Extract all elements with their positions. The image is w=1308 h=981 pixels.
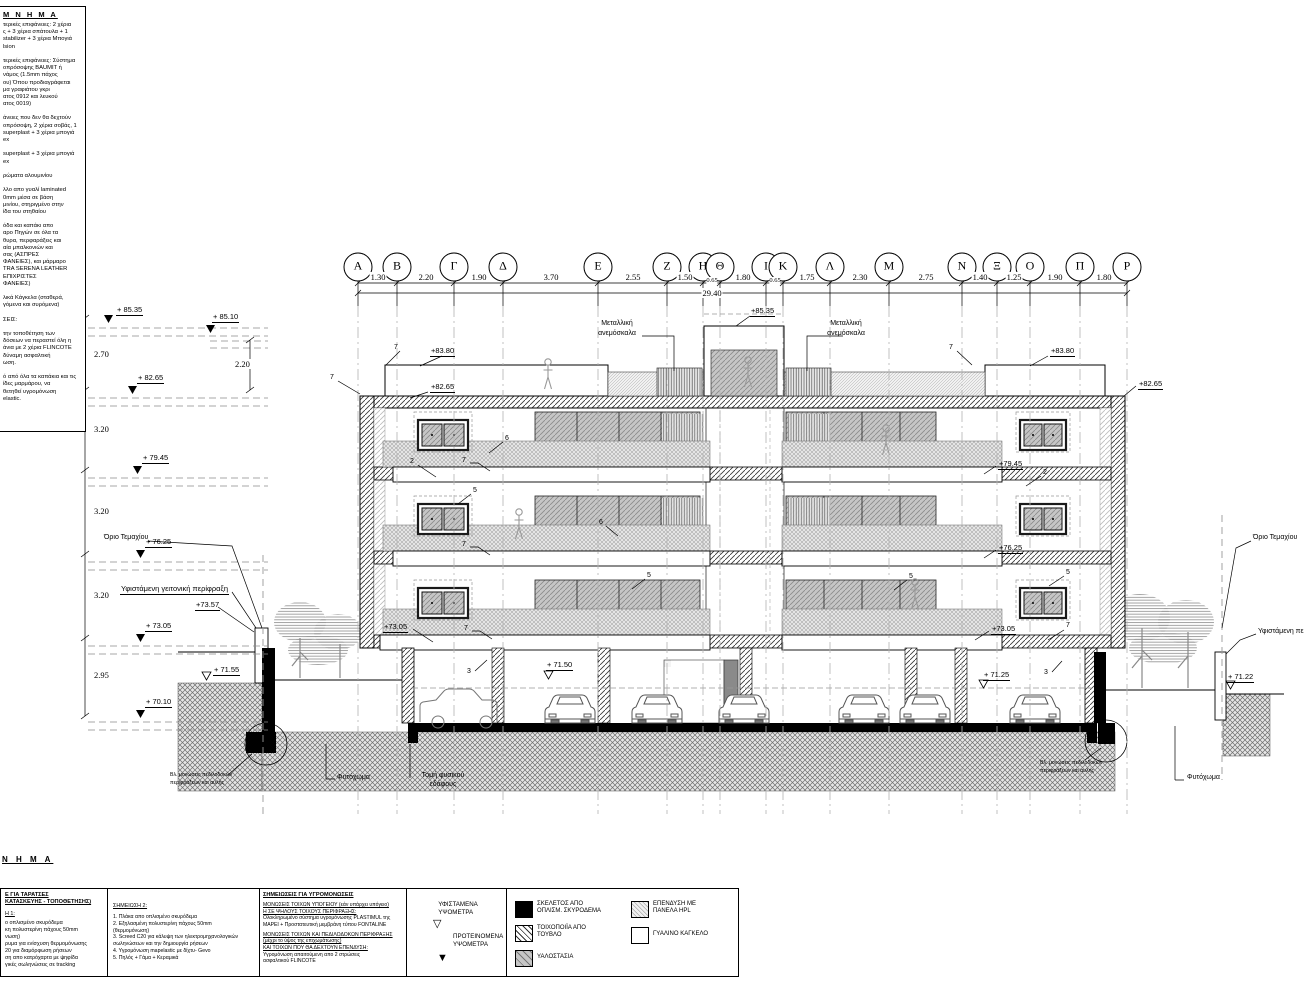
glazing-swatch-icon [515, 950, 533, 967]
level-83-80: +83.80 [430, 347, 455, 357]
level-79-45: +79.45 [998, 460, 1023, 470]
bottom-legend-header: Ν Η Μ Α [2, 855, 53, 864]
callout-6: 6 [599, 519, 603, 526]
metal-ladder-right [786, 368, 831, 396]
grid-dim: 1.90 [471, 272, 488, 282]
metal-ladder-label: Μεταλλική [601, 320, 633, 327]
level-85-35-roof: +85.35 [750, 307, 775, 317]
metal-ladder-left [657, 368, 702, 396]
grid-axis-M: Μ [875, 253, 904, 282]
level-83-80: +83.80 [1050, 347, 1075, 357]
grid-axis-A: Α [344, 253, 373, 282]
proposed-levels-label: ΠΡΟΤΕΙΝΟΜΕΝΑ ΥΨΟΜΕΤΡΑ [453, 933, 503, 949]
architectural-section-sheet: Μ Ν Η Μ Α τερικές επιφάνειες: 2 χέρια ς … [0, 0, 1308, 981]
grid-axis-B: Β [383, 253, 412, 282]
level-82-65: + 82.65 [137, 374, 164, 384]
level-82-65: +82.65 [430, 383, 455, 393]
glass-rail-label: ΓΥΑΛΙΝΟ ΚΑΓΚΕΛΟ [653, 931, 708, 938]
materials-legend-box: Μ Ν Η Μ Α τερικές επιφάνειες: 2 χέρια ς … [0, 6, 86, 432]
car [545, 695, 595, 723]
metal-ladder-label: ανεμόσκαλα [827, 330, 865, 337]
footing-insulation-note: περιφράξεων και αυλής [170, 781, 224, 786]
brick-swatch-icon [515, 925, 533, 942]
grid-dim: 2.20 [418, 272, 435, 282]
note1-subtitle: Η 1: [5, 911, 105, 918]
waterproofing-title: ΣΗΜΕΙΩΣΕΙΣ ΓΙΑ ΥΓΡΟΜΟΝΩΣΕΙΣ [263, 892, 403, 899]
existing-fence-label: Υφιστάμενη πε [1258, 628, 1304, 635]
callout-3: 3 [467, 668, 471, 675]
existing-levels-label: ΥΦΙΣΤΑΜΕΝΑ ΥΨΟΜΕΤΡΑ [438, 901, 478, 917]
waterproofing-notes-block: ΣΗΜΕΙΩΣΕΙΣ ΓΙΑ ΥΓΡΟΜΟΝΩΣΕΙΣ ΜΟΝΩΣΕΙΣ ΤΟΙ… [263, 892, 403, 965]
grid-dim: 0.65 [706, 277, 717, 284]
grid-dim: 1.80 [735, 272, 752, 282]
car [632, 695, 682, 723]
callout-7: 7 [1066, 622, 1070, 629]
level-82-65: +82.65 [1138, 380, 1163, 390]
callout-5: 5 [473, 487, 477, 494]
level-71-55: + 71.55 [213, 666, 240, 676]
dim-3-20: 3.20 [93, 424, 110, 434]
car [839, 695, 889, 723]
grid-dim: 2.30 [852, 272, 869, 282]
callout-5: 5 [1066, 569, 1070, 576]
level-73-05: + 73.05 [145, 622, 172, 632]
waterproofing-sub1: ΜΟΝΩΣΕΙΣ ΤΟΙΧΩΝ ΥΠΟΓΕΙΟΥ (εάν υπάρχει υπ… [263, 902, 403, 915]
grid-axis-R: Ρ [1113, 253, 1142, 282]
glazing-label: ΥΑΛΟΣΤΑΣΙΑ [537, 954, 573, 961]
dim-2-95: 2.95 [93, 670, 110, 680]
hpl-swatch-icon [631, 901, 649, 918]
grid-dim: 1.75 [799, 272, 816, 282]
callout-7: 7 [462, 457, 466, 464]
natural-ground-label: εδάφους [430, 781, 457, 788]
plot-boundary-label: Όριο Τεμαχίου [104, 534, 148, 541]
level-79-45: + 79.45 [142, 454, 169, 464]
callout-7: 7 [330, 374, 334, 381]
dim-3-20: 3.20 [93, 590, 110, 600]
roof-notes-block: Ε ΓΙΑ ΤΑΡΑΤΣΕΣ ΚΑΤΑΣΚΕΥΗΣ - ΤΟΠΟΘΕΤΗΣΗΣ)… [5, 892, 105, 969]
level-73-57: +73.57 [195, 601, 220, 611]
note2-body: 1. Πλάκα απο οπλισμένο σκυρόδεμα 2. Εξηλ… [113, 914, 256, 961]
roof-notes-title: Ε ΓΙΑ ΤΑΡΑΤΣΕΣ [5, 892, 105, 899]
divider [406, 889, 407, 976]
note1-body: ο οπλισμένο σκυρόδεμα κη πολυστερίνη πάχ… [5, 920, 105, 969]
topsoil-label: Φυτόχωμα [1187, 774, 1220, 781]
metal-ladder-label: Μεταλλική [830, 320, 862, 327]
divider [107, 889, 108, 976]
existing-level-icon: ▽ [433, 919, 441, 930]
brick-label: ΤΟΙΧΟΠΟΙΪΑ ΑΠΟ ΤΟΥΒΛΟ [537, 925, 586, 939]
car [719, 695, 769, 723]
waterproofing-body2: Υγρομόνωση απαιτούμενη απο 2 στρώσεις ασ… [263, 952, 403, 965]
level-71-50: + 71.50 [546, 661, 573, 671]
footing-insulation-note: περιφράξεων και αυλής [1040, 769, 1094, 774]
callout-7: 7 [394, 344, 398, 351]
grid-axis-L: Λ [816, 253, 845, 282]
divider [259, 889, 260, 976]
callout-5: 5 [909, 573, 913, 580]
callout-7: 7 [464, 625, 468, 632]
callout-7: 7 [949, 344, 953, 351]
level-73-05: +73.05 [991, 625, 1016, 635]
natural-ground-label: Τομή φυσικού [422, 772, 465, 779]
grid-dim: 1.30 [370, 272, 387, 282]
grid-dim: 1.40 [972, 272, 989, 282]
car [1010, 695, 1060, 723]
topsoil-label: Φυτόχωμα [337, 774, 370, 781]
grid-axis-P: Π [1066, 253, 1095, 282]
level-76-25: + 76.25 [145, 538, 172, 548]
callout-3: 3 [1044, 669, 1048, 676]
legend-body: τερικές επιφάνειες: 2 χέρια ς + 3 χέρια … [3, 22, 83, 403]
level-85-10: + 85.10 [212, 313, 239, 323]
dim-3-20: 3.20 [93, 506, 110, 516]
concrete-swatch-icon [515, 901, 533, 918]
footing-insulation-note: Βλ. μονώσεις πεδιλοδοκών [1040, 761, 1102, 766]
car [900, 695, 950, 723]
notes-strip: Ε ΓΙΑ ΤΑΡΑΤΣΕΣ ΚΑΤΑΣΚΕΥΗΣ - ΤΟΠΟΘΕΤΗΣΗΣ)… [0, 888, 739, 977]
plot-boundary-label: Όριο Τεμαχίου [1253, 534, 1297, 541]
waterproofing-sub2: ΜΟΝΩΣΕΙΣ ΤΟΙΧΩΝ ΚΑΙ ΠΕΔΙΛΟΔΟΚΩΝ ΠΕΡΙΦΡΑΞ… [263, 932, 403, 952]
proposed-level-icon: ▼ [437, 953, 448, 964]
callout-7: 7 [462, 541, 466, 548]
grid-total-dim: 29.40 [701, 288, 722, 298]
note2-block: ΣΗΜΕΙΩΣΗ 2: 1. Πλάκα απο οπλισμένο σκυρό… [113, 903, 256, 961]
callout-6: 6 [505, 435, 509, 442]
callout-2: 2 [1043, 469, 1047, 476]
level-71-22: + 71.22 [1227, 673, 1254, 683]
callout-5: 5 [647, 572, 651, 579]
roof-notes-title2: ΚΑΤΑΣΚΕΥΗΣ - ΤΟΠΟΘΕΤΗΣΗΣ) [5, 899, 105, 906]
grid-dim: 2.55 [625, 272, 642, 282]
level-76-25: +76.25 [998, 544, 1023, 554]
dim-2-20: 2.20 [234, 359, 251, 369]
grid-dim: 1.80 [1096, 272, 1113, 282]
note2-title: ΣΗΜΕΙΩΣΗ 2: [113, 903, 256, 910]
dim-2-70: 2.70 [93, 349, 110, 359]
grid-axis-G: Γ [440, 253, 469, 282]
grid-dim: 2.75 [918, 272, 935, 282]
concrete-label: ΣΚΕΛΕΤΟΣ ΑΠΟ ΟΠΛΙΣΜ. ΣΚΥΡΟΔΕΜΑ [537, 901, 601, 915]
level-70-10: + 70.10 [145, 698, 172, 708]
footing-insulation-note: Βλ. μονώσεις πεδιλοδοκών [170, 773, 232, 778]
level-85-35: + 85.35 [116, 306, 143, 316]
metal-ladder-label: ανεμόσκαλα [598, 330, 636, 337]
glass-rail-swatch-icon [631, 927, 649, 944]
grid-dim: 3.70 [543, 272, 560, 282]
level-73-05: +73.05 [383, 623, 408, 633]
grid-dim: 1.25 [1006, 272, 1023, 282]
existing-fence-label: Υφιστάμενη γειτονική περίφραξη [120, 585, 229, 595]
divider [506, 889, 507, 976]
grid-dim: 1.90 [1047, 272, 1064, 282]
level-71-25: + 71.25 [983, 671, 1010, 681]
grid-axis-D: Δ [489, 253, 518, 282]
hpl-label: ΕΠΕΝΔΥΣΗ ΜΕ ΠΑΝΕΛΑ HPL [653, 901, 696, 915]
waterproofing-body1: Ολοκληρωμένο σύστημα υγρομόνωσης PLASTIM… [263, 915, 403, 928]
grid-dim: 0.65 [769, 277, 780, 284]
legend-header: Μ Ν Η Μ Α [3, 10, 83, 19]
section-drawing [0, 0, 1308, 981]
grid-dim: 1.50 [677, 272, 694, 282]
callout-2: 2 [410, 458, 414, 465]
grid-axis-E: Ε [584, 253, 613, 282]
